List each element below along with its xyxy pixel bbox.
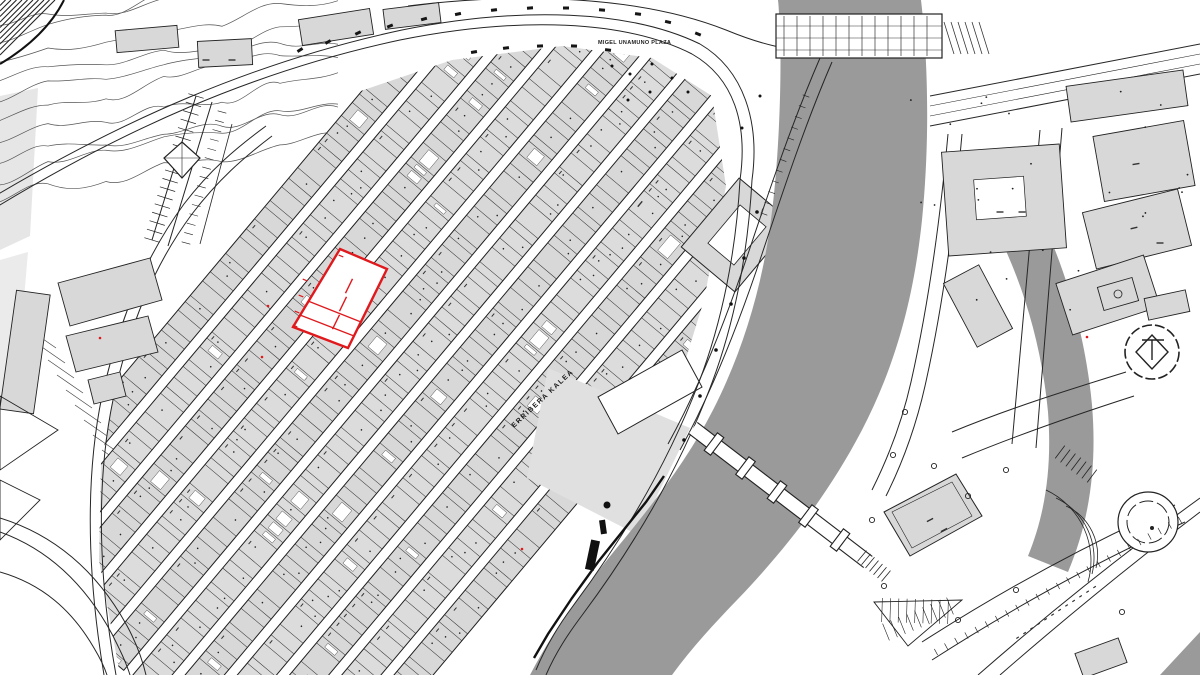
kite-landmark (164, 142, 200, 178)
stairs-triangle (874, 598, 962, 646)
theater-building (884, 474, 982, 556)
plaza-label: MIGEL UNAMUNO PLAZA (598, 40, 671, 46)
upper-buildings (115, 3, 441, 68)
roundabout (1118, 492, 1178, 552)
top-bridge (776, 14, 989, 58)
map-viewport[interactable]: MIGEL UNAMUNO PLAZA ERRIBERA KALEA (0, 0, 1200, 675)
circular-plaza (1125, 325, 1179, 379)
corner-water (1160, 632, 1200, 675)
rail-corridor (1000, 215, 1094, 572)
city-map-canvas[interactable]: MIGEL UNAMUNO PLAZA ERRIBERA KALEA (0, 0, 1200, 675)
